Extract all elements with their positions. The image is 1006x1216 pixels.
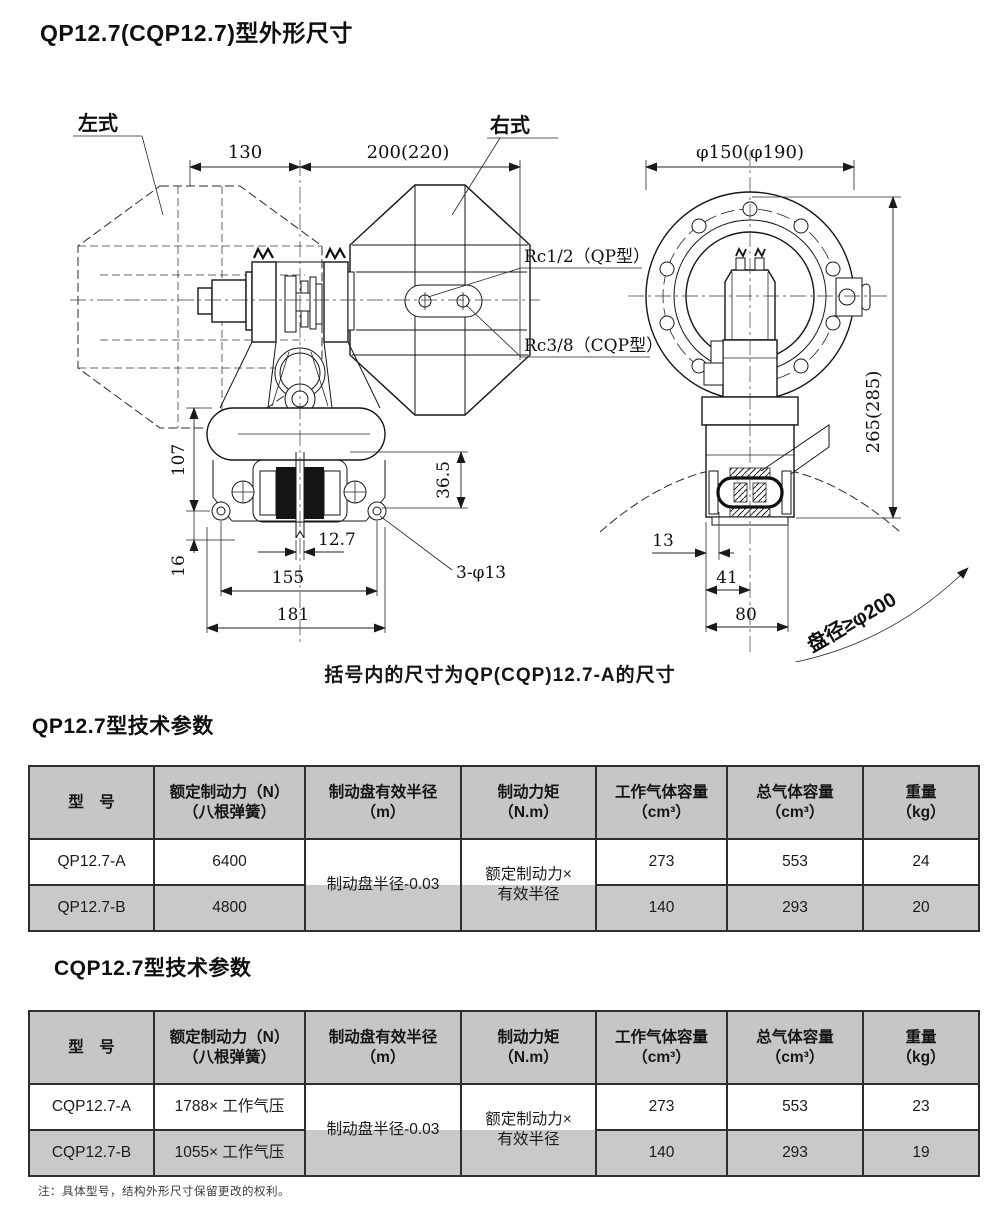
caliper-assembly: [207, 408, 386, 538]
dim-diameter: φ150(φ190): [696, 142, 804, 163]
col-header-rated-force: 额定制动力（N）（八根弹簧）: [154, 1011, 305, 1084]
label-right-type: 右式: [490, 113, 530, 137]
outline-dimension-drawing: 130 200(220) 107 16 36.5 12.7: [0, 60, 1006, 662]
col-header-work-volume: 工作气体容量（cm³）: [596, 1011, 727, 1084]
dim-80: 80: [735, 605, 757, 625]
table-row: QP12.7-A 6400 制动盘半径-0.03 额定制动力×有效半径 273 …: [29, 839, 979, 885]
port-label-qp: Rc1/2（QP型）: [524, 247, 650, 267]
table2-title: CQP12.7型技术参数: [54, 952, 251, 982]
dim-107: 107: [169, 444, 189, 476]
dim-height: 265(285): [863, 371, 884, 454]
label-left-type: 左式: [78, 111, 118, 135]
spring-symbol-right: [326, 249, 345, 258]
dim-181: 181: [277, 605, 309, 625]
dim-36-5: 36.5: [434, 461, 454, 499]
spring-symbol-left: [254, 249, 273, 258]
cell-work-volume: 140: [596, 1130, 727, 1176]
col-header-model: 型 号: [29, 766, 154, 839]
cell-total-volume: 293: [727, 885, 863, 931]
port-label-cqp: Rc3/8（CQP型）: [524, 336, 663, 356]
cell-total-volume: 293: [727, 1130, 863, 1176]
side-view: 130 200(220) 107 16 36.5 12.7: [70, 111, 663, 645]
dim-16: 16: [169, 555, 189, 577]
qp-spec-table: 型 号 额定制动力（N）（八根弹簧） 制动盘有效半径（m） 制动力矩（N.m） …: [28, 765, 980, 932]
left-arm: [252, 262, 276, 342]
cell-weight: 24: [863, 839, 979, 885]
cell-work-volume: 273: [596, 839, 727, 885]
cell-total-volume: 553: [727, 1084, 863, 1130]
cell-disc-radius-merged: 制动盘半径-0.03: [305, 1084, 461, 1176]
datasheet-page: QP12.7(CQP12.7)型外形尺寸: [0, 0, 1006, 1216]
cell-torque-merged: 额定制动力×有效半径: [461, 839, 596, 931]
col-header-disc-radius: 制动盘有效半径（m）: [305, 1011, 461, 1084]
cell-work-volume: 273: [596, 1084, 727, 1130]
cell-model: CQP12.7-A: [29, 1084, 154, 1130]
drawing-caption: 括号内的尺寸为QP(CQP)12.7-A的尺寸: [20, 660, 980, 687]
col-header-disc-radius: 制动盘有效半径（m）: [305, 766, 461, 839]
table1-title: QP12.7型技术参数: [32, 710, 214, 740]
col-header-rated-force: 额定制动力（N）（八根弹簧）: [154, 766, 305, 839]
col-header-weight: 重量（kg）: [863, 766, 979, 839]
cell-torque-merged: 额定制动力×有效半径: [461, 1084, 596, 1176]
page-title: QP12.7(CQP12.7)型外形尺寸: [40, 14, 353, 48]
brake-pad-left: [276, 467, 296, 519]
cell-rated-force: 6400: [154, 839, 305, 885]
front-view: 盘径≥φ200 φ150(φ190) 265(285) 13: [600, 142, 968, 662]
cell-weight: 23: [863, 1084, 979, 1130]
disc-diameter-label: 盘径≥φ200: [803, 587, 900, 657]
header-row: 型 号 额定制动力（N）（八根弹簧） 制动盘有效半径（m） 制动力矩（N.m） …: [29, 766, 979, 839]
col-header-total-volume: 总气体容量（cm³）: [727, 1011, 863, 1084]
dim-155: 155: [272, 568, 304, 588]
cell-weight: 19: [863, 1130, 979, 1176]
col-header-total-volume: 总气体容量（cm³）: [727, 766, 863, 839]
cell-disc-radius-merged: 制动盘半径-0.03: [305, 839, 461, 931]
table-row: CQP12.7-A 1788× 工作气压 制动盘半径-0.03 额定制动力×有效…: [29, 1084, 979, 1130]
header-row: 型 号 额定制动力（N）（八根弹簧） 制动盘有效半径（m） 制动力矩（N.m） …: [29, 1011, 979, 1084]
right-arm: [324, 262, 348, 342]
front-body: [702, 249, 829, 525]
dim-13: 13: [652, 531, 674, 551]
brake-pad-right: [304, 467, 324, 519]
col-header-weight: 重量（kg）: [863, 1011, 979, 1084]
footnote: 注：具体型号，结构外形尺寸保留更改的权利。: [38, 1183, 290, 1199]
air-port-boss: [405, 285, 482, 317]
dim-41: 41: [716, 568, 738, 588]
cell-model: QP12.7-B: [29, 885, 154, 931]
col-header-torque: 制动力矩（N.m）: [461, 1011, 596, 1084]
cell-work-volume: 140: [596, 885, 727, 931]
col-header-torque: 制动力矩（N.m）: [461, 766, 596, 839]
cell-rated-force: 4800: [154, 885, 305, 931]
cell-total-volume: 553: [727, 839, 863, 885]
cell-rated-force: 1055× 工作气压: [154, 1130, 305, 1176]
cqp-spec-table: 型 号 额定制动力（N）（八根弹簧） 制动盘有效半径（m） 制动力矩（N.m） …: [28, 1010, 980, 1177]
holes-label: 3-φ13: [456, 563, 506, 583]
col-header-model: 型 号: [29, 1011, 154, 1084]
cell-rated-force: 1788× 工作气压: [154, 1084, 305, 1130]
dim-12-7: 12.7: [318, 530, 356, 550]
cell-model: CQP12.7-B: [29, 1130, 154, 1176]
dim-130: 130: [228, 142, 262, 163]
col-header-work-volume: 工作气体容量（cm³）: [596, 766, 727, 839]
dim-200-220: 200(220): [367, 142, 450, 163]
cell-model: QP12.7-A: [29, 839, 154, 885]
cell-weight: 20: [863, 885, 979, 931]
